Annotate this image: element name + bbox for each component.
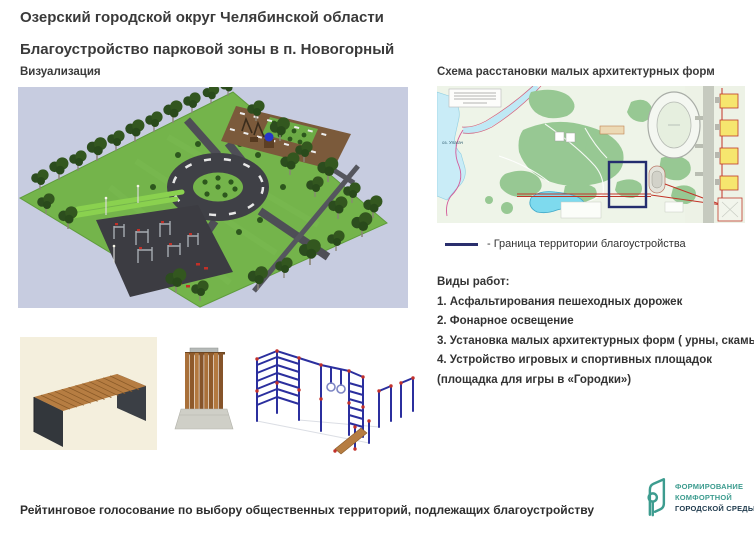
ribbon-leaf-icon	[641, 474, 669, 520]
site-map: оз. Улагач	[437, 86, 745, 223]
slide: Озерский городской округ Челябинской обл…	[0, 0, 754, 533]
scheme-label: Схема расстановки малых архитектурных фо…	[437, 66, 715, 78]
page-title: Озерский городской округ Челябинской обл…	[20, 9, 384, 26]
works-list: Виды работ: 1. Асфальтирования пешеходны…	[437, 273, 754, 390]
trash-urn-image	[173, 345, 235, 437]
page-subtitle: Благоустройство парковой зоны в п. Новог…	[20, 41, 394, 58]
logo-line-2: КОМФОРТНОЙ	[675, 492, 754, 503]
legend-label: - Граница территории благоустройства	[487, 238, 686, 250]
works-item: 3. Установка малых архитектурных форм ( …	[437, 332, 754, 352]
works-heading: Виды работ:	[437, 273, 754, 293]
boundary-line-swatch	[445, 243, 478, 246]
logo-line-1: ФОРМИРОВАНИЕ	[675, 481, 754, 492]
workout-complex-image	[243, 331, 421, 459]
works-item: 4. Устройство игровых и спортивных площа…	[437, 351, 754, 371]
map-stamp-box	[449, 89, 501, 107]
footer-note: Рейтинговое голосование по выбору общест…	[20, 503, 594, 517]
site-map-image: оз. Улагач	[437, 86, 745, 223]
bench-image	[20, 337, 157, 450]
logo-line-3: ГОРОДСКОЙ СРЕДЫ	[675, 503, 754, 514]
street	[703, 86, 714, 223]
park-visualization-image	[18, 87, 408, 308]
map-legend: - Граница территории благоустройства	[445, 238, 686, 250]
visualization-label: Визуализация	[20, 66, 101, 78]
park-render	[18, 87, 408, 308]
fkgs-logo-text: ФОРМИРОВАНИЕ КОМФОРТНОЙ ГОРОДСКОЙ СРЕДЫ	[675, 481, 754, 514]
works-item: 1. Асфальтирования пешеходных дорожек	[437, 293, 754, 313]
works-item: 2. Фонарное освещение	[437, 312, 754, 332]
works-item: (площадка для игры в «Городки»)	[437, 371, 754, 391]
lake-label: оз. Улагач	[442, 140, 464, 145]
fkgs-logo: ФОРМИРОВАНИЕ КОМФОРТНОЙ ГОРОДСКОЙ СРЕДЫ	[641, 474, 754, 520]
